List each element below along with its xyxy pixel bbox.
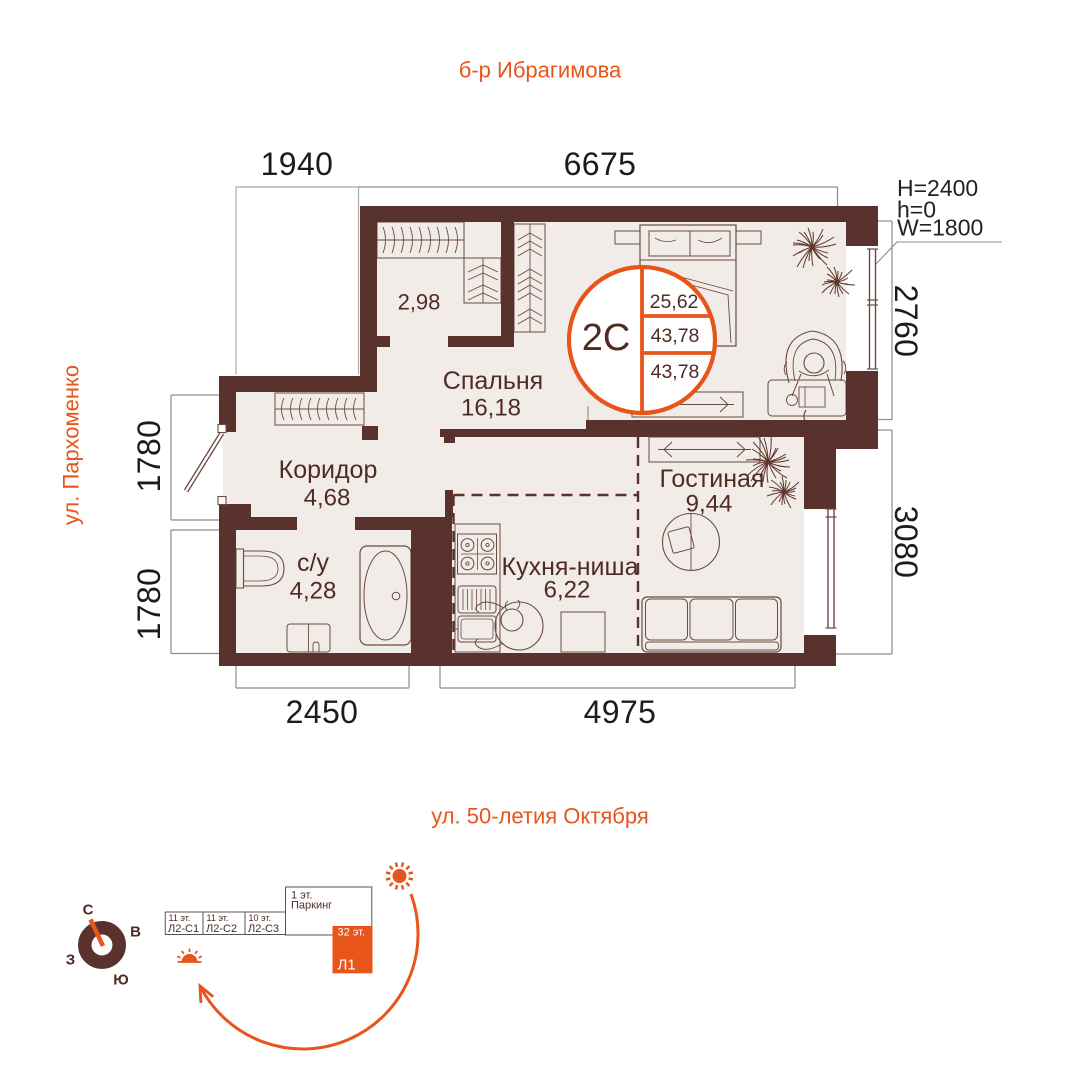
svg-text:1940: 1940 xyxy=(261,146,334,182)
svg-text:1780: 1780 xyxy=(131,568,167,641)
svg-text:Л2-С3: Л2-С3 xyxy=(248,923,279,935)
svg-text:ул. 50-летия Октября: ул. 50-летия Октября xyxy=(431,804,649,829)
svg-text:4975: 4975 xyxy=(584,694,657,730)
svg-text:с/у: с/у xyxy=(297,549,329,577)
svg-text:11 эт.: 11 эт. xyxy=(207,913,229,923)
svg-text:В: В xyxy=(130,924,141,941)
svg-text:25,62: 25,62 xyxy=(650,291,699,313)
svg-text:С: С xyxy=(83,902,94,919)
svg-text:11 эт.: 11 эт. xyxy=(169,913,191,923)
svg-text:Л1: Л1 xyxy=(338,957,356,974)
svg-text:43,78: 43,78 xyxy=(651,361,700,383)
svg-text:16,18: 16,18 xyxy=(461,395,521,422)
svg-text:Паркинг: Паркинг xyxy=(291,900,332,912)
svg-text:б-р Ибрагимова: б-р Ибрагимова xyxy=(459,58,622,83)
svg-text:Гостиная: Гостиная xyxy=(660,465,765,493)
svg-text:ул. Пархоменко: ул. Пархоменко xyxy=(59,365,84,525)
svg-text:43,78: 43,78 xyxy=(651,325,700,347)
svg-text:6,22: 6,22 xyxy=(544,577,591,604)
svg-text:9,44: 9,44 xyxy=(686,491,733,518)
svg-text:2,98: 2,98 xyxy=(398,290,441,315)
svg-text:2760: 2760 xyxy=(888,285,924,358)
svg-text:Л2-С2: Л2-С2 xyxy=(206,923,237,935)
svg-text:32 эт.: 32 эт. xyxy=(338,927,366,939)
svg-text:2450: 2450 xyxy=(286,694,359,730)
svg-text:2C: 2C xyxy=(582,317,631,359)
svg-text:Ю: Ю xyxy=(113,972,128,989)
svg-text:Спальня: Спальня xyxy=(443,367,543,395)
svg-text:Л2-С1: Л2-С1 xyxy=(168,923,199,935)
svg-text:З: З xyxy=(66,952,75,969)
svg-text:3080: 3080 xyxy=(888,506,924,579)
svg-text:4,28: 4,28 xyxy=(290,578,337,605)
svg-text:1780: 1780 xyxy=(131,420,167,493)
svg-text:4,68: 4,68 xyxy=(304,485,351,512)
svg-text:Коридор: Коридор xyxy=(279,456,378,484)
svg-text:W=1800: W=1800 xyxy=(897,215,983,241)
svg-text:6675: 6675 xyxy=(564,146,637,182)
svg-text:10 эт.: 10 эт. xyxy=(249,913,272,923)
